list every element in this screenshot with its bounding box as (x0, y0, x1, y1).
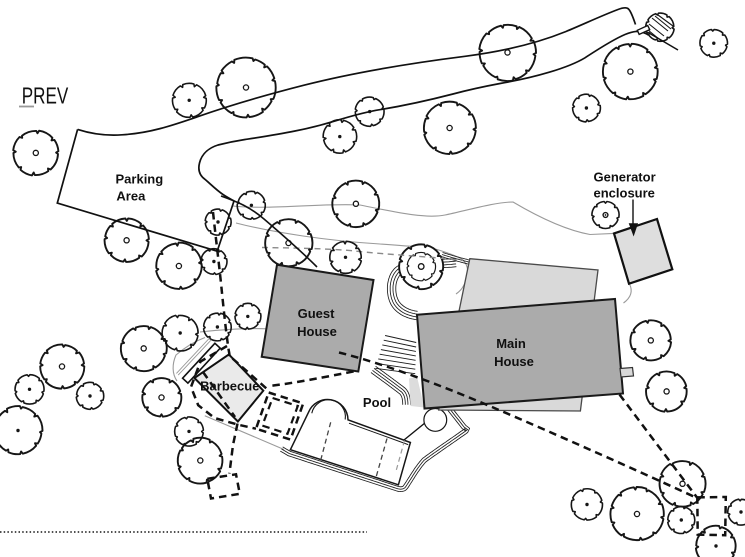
svg-text:Generator: Generator (594, 170, 656, 185)
svg-text:Barbecue: Barbecue (200, 379, 259, 394)
svg-text:Main: Main (496, 336, 526, 351)
svg-text:Parking: Parking (116, 172, 164, 187)
svg-text:Area: Area (116, 189, 146, 204)
svg-text:House: House (297, 324, 337, 339)
svg-text:enclosure: enclosure (594, 186, 655, 201)
svg-text:Pool: Pool (363, 395, 391, 410)
svg-text:House: House (494, 354, 534, 369)
svg-text:Guest: Guest (298, 306, 336, 321)
svg-text:PREV: PREV (22, 82, 69, 108)
